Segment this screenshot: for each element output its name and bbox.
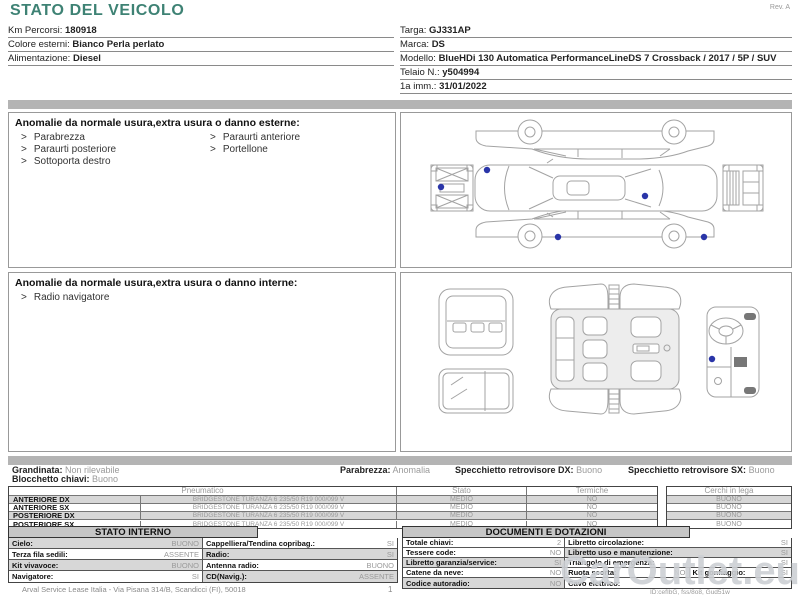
condition-blocchetto-chiavi: Blocchetto chiavi: Buono (12, 474, 118, 484)
table-row: Navigatore:SI CD(Navig.):ASSENTE (9, 571, 397, 582)
page-number: 1 (388, 585, 392, 594)
page-title: STATO DEL VEICOLO (10, 2, 184, 20)
field-telaio: Telaio N.: y504994 (400, 66, 792, 80)
dashboard-view (707, 307, 759, 397)
field-alimentazione: Alimentazione: Diesel (8, 52, 394, 66)
column-header-termiche: Termiche (527, 487, 657, 495)
list-item: >Paraurti anteriore (202, 131, 391, 143)
exterior-anomalies-panel: Anomalie da normale usura,extra usura o … (8, 112, 396, 268)
field-colore-esterni: Colore esterni: Bianco Perla perlato (8, 38, 394, 52)
damage-marker (555, 234, 561, 240)
table-row: Cielo:BUONO Cappelliera/Tendina copribag… (9, 538, 397, 549)
caroutlet-watermark: CarOutlet.eu (560, 551, 800, 591)
list-marker: > (210, 144, 216, 155)
stato-interno-header: STATO INTERNO (8, 526, 258, 538)
list-item: >Portellone (202, 143, 391, 155)
car-front-view (431, 165, 473, 211)
car-side-view-top (476, 120, 714, 159)
condition-parabrezza: Parabrezza: Anomalia (340, 465, 430, 475)
interior-diagram (401, 273, 789, 449)
damage-marker (701, 234, 707, 240)
table-row: Terza fila sedili:ASSENTE Radio:SI (9, 549, 397, 560)
revision-label: Rev. A (770, 4, 790, 11)
column-header-pneumatico: Pneumatico (9, 487, 397, 495)
cabin-top-view (549, 284, 680, 414)
documenti-header: DOCUMENTI E DOTAZIONI (402, 526, 690, 538)
tyre-table-header: Pneumatico Stato Termiche (9, 487, 657, 496)
interior-diagram-panel (400, 272, 792, 452)
car-side-view-bottom (476, 209, 714, 248)
interior-anomalies-panel: Anomalie da normale usura,extra usura o … (8, 272, 396, 452)
field-km-percorsi: Km Percorsi: 180918 (8, 24, 394, 38)
column-header-stato: Stato (397, 487, 527, 495)
rear-seats-view (439, 289, 513, 355)
field-targa: Targa: GJ331AP (400, 24, 792, 38)
damage-marker (438, 184, 444, 190)
table-row: BUONO (667, 496, 791, 504)
car-top-view (475, 159, 717, 217)
list-item: >Parabrezza (13, 131, 202, 143)
vehicle-summary-right: Targa: GJ331AP Marca: DS Modello: BlueHD… (400, 24, 792, 94)
table-row: ANTERIORE DX BRIDGESTONE TURANZA 6 235/5… (9, 496, 657, 504)
exterior-diagram-panel (400, 112, 792, 268)
table-row: ANTERIORE SX BRIDGESTONE TURANZA 6 235/5… (9, 504, 657, 512)
condition-specchietto-sx: Specchietto retrovisore SX: Buono (628, 465, 775, 475)
list-marker: > (21, 132, 27, 143)
car-rear-view (723, 165, 763, 211)
section-divider-bar (8, 456, 792, 465)
table-row: POSTERIORE DX BRIDGESTONE TURANZA 6 235/… (9, 512, 657, 520)
condition-specchietto-dx: Specchietto retrovisore DX: Buono (455, 465, 602, 475)
alloy-wheels-table: Cerchi in lega BUONO BUONO BUONO BUONO (666, 486, 792, 529)
table-row: BUONO (667, 504, 791, 512)
field-marca: Marca: DS (400, 38, 792, 52)
damage-marker (642, 193, 648, 199)
vehicle-summary-left: Km Percorsi: 180918 Colore esterni: Bian… (8, 24, 394, 66)
list-marker: > (21, 144, 27, 155)
footer-address: Arval Service Lease Italia - Via Pisana … (22, 585, 246, 594)
list-item: >Sottoporta destro (13, 155, 202, 167)
table-row: Kit vivavoce:BUONO Antenna radio:BUONO (9, 560, 397, 571)
boot-view (439, 369, 513, 413)
list-marker: > (21, 156, 27, 167)
damage-marker (709, 356, 715, 362)
watermark-id-note: ID:cefIbG, fss/8o8, Gud51w (650, 589, 730, 596)
interior-anomalies-title: Anomalie da normale usura,extra usura o … (9, 273, 395, 291)
damage-marker (484, 167, 490, 173)
list-marker: > (21, 292, 27, 303)
list-item: >Radio navigatore (13, 291, 202, 303)
list-marker: > (210, 132, 216, 143)
column-header-cerchi: Cerchi in lega (667, 487, 791, 496)
list-item: >Paraurti posteriore (13, 143, 202, 155)
field-modello: Modello: BlueHDi 130 Automatica Performa… (400, 52, 792, 66)
table-row: BUONO (667, 512, 791, 520)
field-prima-immatricolazione: 1a imm.: 31/01/2022 (400, 80, 792, 94)
exterior-diagram (401, 113, 789, 267)
table-row: Totale chiavi:2 Libretto circolazione:SI (403, 538, 791, 548)
exterior-anomalies-title: Anomalie da normale usura,extra usura o … (9, 113, 395, 131)
section-divider-bar (8, 100, 792, 109)
tyre-table: Pneumatico Stato Termiche ANTERIORE DX B… (8, 486, 658, 529)
vehicle-status-report: STATO DEL VEICOLO Rev. A Km Percorsi: 18… (0, 0, 800, 600)
stato-interno-table: Cielo:BUONO Cappelliera/Tendina copribag… (8, 538, 398, 583)
